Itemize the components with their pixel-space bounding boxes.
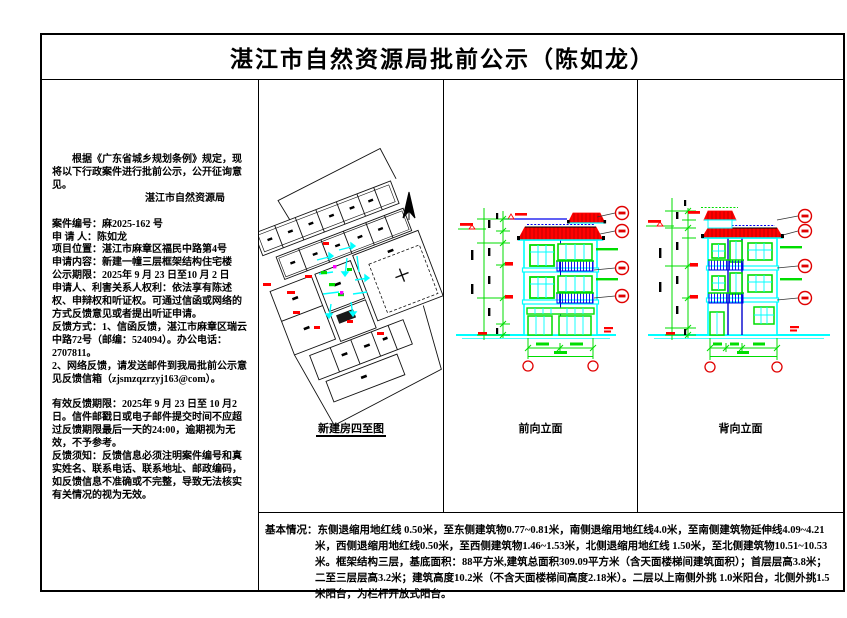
front-elevation-label: 前向立面 [444, 420, 637, 436]
ground-floor-openings [527, 308, 594, 335]
page-title: 湛江市自然资源局批前公示（陈如龙） [42, 35, 843, 80]
stair-bulkhead-roof [567, 213, 606, 223]
sheet-body: 根据《广东省城乡规划条例》规定，现将以下行政案件进行批前公示，公开征询意见。 湛… [42, 80, 843, 590]
parcel-number-marks [267, 198, 432, 393]
project-location: 项目位置：湛江市麻章区福民中路第4号 [52, 244, 249, 257]
parcel-grid [259, 146, 444, 429]
notice-sheet: 湛江市自然资源局批前公示（陈如龙） 根据《广东省城乡规划条例》规定，现将以下行政… [40, 33, 845, 592]
basic-info-text: 东侧退缩用地红线 0.50米，至东侧建筑物0.77~0.81米，南侧退缩用地红线… [315, 525, 830, 600]
grid-bubbles [799, 210, 812, 305]
agency-signature: 湛江市自然资源局 [52, 193, 249, 206]
site-plan-drawing [259, 80, 444, 513]
level-marks [648, 211, 700, 335]
level-marks [460, 223, 513, 335]
left-dimension-chain [646, 198, 700, 340]
feedback-method-mail: 反馈方式：1、信函反馈，湛江市麻章区瑞云中路72号（邮编：524094）。办公电… [52, 322, 249, 361]
basic-info-label: 基本情况： [265, 525, 318, 536]
case-number: 案件编号：麻2025-162 号 [52, 219, 249, 232]
bottom-dimension [705, 338, 782, 372]
notice-intro: 根据《广东省城乡规划条例》规定，现将以下行政案件进行批前公示，公开征询意见。 [52, 154, 249, 193]
ground-right-red-mark [604, 327, 613, 333]
rear-elevation-label: 背向立面 [638, 420, 843, 436]
rear-elevation-drawing [638, 80, 845, 513]
rights-statement: 申请人、利害关系人权利：依法享有陈述权、申辩权和听证权。可通过信函或网络的方式反… [52, 283, 249, 322]
notice-text-panel: 根据《广东省城乡规划条例》规定，现将以下行政案件进行批前公示，公开征询意见。 湛… [42, 80, 259, 590]
feedback-method-email: 2、网络反馈，请发送邮件到我局批前公示意见反馈信箱（zjsmzqzrzyj163… [52, 361, 249, 387]
site-plan-label: 新建房四至图 [259, 420, 443, 436]
left-dimension-chain [458, 208, 513, 340]
basic-info-section: 基本情况：东侧退缩用地红线 0.50米，至东侧建筑物0.77~0.81米，南侧退… [259, 513, 843, 603]
rear-elevation-panel: 背向立面 [638, 80, 843, 512]
bottom-dimension [523, 338, 598, 371]
main-roof [517, 225, 605, 241]
front-elevation-drawing [444, 80, 638, 513]
green-note-marks [596, 248, 618, 280]
front-elevation-panel: 前向立面 [444, 80, 638, 512]
feedback-notice: 反馈须知：反馈信息必须注明案件编号和真实姓名、联系电话、联系地址、邮政编码，如反… [52, 451, 249, 503]
drawings-row: 新建房四至图 [259, 80, 843, 513]
publicity-period: 公示期限：2025年 9 月 23 日至10 月 2 日 [52, 270, 249, 283]
feedback-deadline: 有效反馈期限：2025年 9 月 23 日至 10 月2日。信件邮戳日或电子邮件… [52, 399, 249, 451]
north-arrow-icon [403, 192, 415, 220]
right-callouts [594, 207, 629, 333]
dimension-digit-marks [471, 213, 498, 334]
ground-right-red-mark [790, 326, 799, 332]
application-content: 申请内容：新建一幢三层框架结构住宅楼 [52, 257, 249, 270]
basic-info-paragraph: 基本情况：东侧退缩用地红线 0.50米，至东侧建筑物0.77~0.81米，南侧退… [265, 523, 831, 603]
right-callouts [777, 210, 812, 332]
grid-bubbles [616, 207, 629, 303]
site-plan-panel: 新建房四至图 [259, 80, 444, 512]
datum-level-line [504, 213, 567, 219]
stair-bulkhead-roof [701, 208, 738, 229]
drawings-and-info: 新建房四至图 [259, 80, 843, 590]
applicant: 申 请 人：陈如龙 [52, 232, 249, 245]
